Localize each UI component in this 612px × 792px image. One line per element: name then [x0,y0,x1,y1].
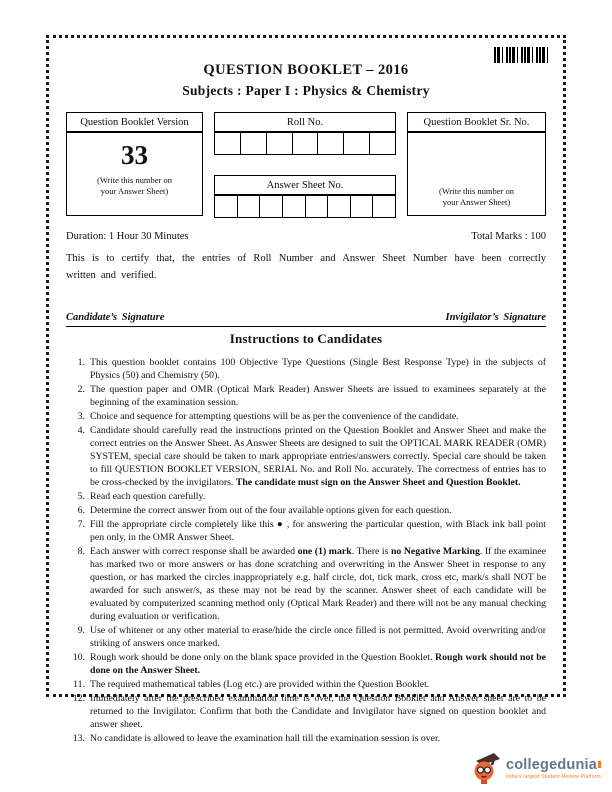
instruction-text: Fill the appropriate circle completely l… [90,518,546,544]
question-booklet-sr-no-box: Question Booklet Sr. No. (Write this num… [407,112,546,216]
entry-cell [293,133,319,154]
instruction-number: 7. [66,518,85,544]
duration-text: Duration: 1 Hour 30 Minutes [66,231,189,242]
entry-cell [318,133,344,154]
entry-cell [267,133,293,154]
spacer [214,155,396,175]
instruction-number: 10. [66,651,85,677]
instruction-number: 1. [66,356,85,382]
answer-sheet-no-label: Answer Sheet No. [215,176,395,196]
instruction-text: Read each question carefully. [90,490,546,503]
instruction-item: 4.Candidate should carefully read the in… [66,424,546,489]
sr-no-box-note: (Write this number on your Answer Sheet) [408,186,545,208]
instructions-title: Instructions to Candidates [66,331,546,347]
entry-cell [351,196,374,217]
logo-text-block: collegedunia India's largest Student Rev… [506,757,601,780]
instruction-text: This question booklet contains 100 Objec… [90,356,546,382]
instruction-item: 3.Choice and sequence for attempting que… [66,410,546,423]
instruction-number: 13. [66,732,85,745]
version-number: 33 [67,142,202,169]
answer-sheet-no-cells [215,196,395,217]
instruction-text: Candidate should carefully read the inst… [90,424,546,489]
logo-name-text: collegedunia [506,757,597,773]
entry-cell [373,196,395,217]
entry-cell [238,196,261,217]
version-box-note: (Write this number on your Answer Sheet) [67,175,202,197]
number-grids-column: Roll No. Answer Sheet No. [214,112,396,218]
collegedunia-logo: collegedunia India's largest Student Rev… [472,751,601,785]
instruction-item: 5.Read each question carefully. [66,490,546,503]
instruction-item: 8.Each answer with correct response shal… [66,545,546,623]
instruction-text: Use of whitener or any other material to… [90,624,546,650]
roll-no-cells [215,133,395,154]
entry-cell [260,196,283,217]
note-line-1: (Write this number on [408,186,545,197]
instruction-item: 7.Fill the appropriate circle completely… [66,518,546,544]
instruction-number: 12. [66,692,85,731]
instruction-number: 9. [66,624,85,650]
candidate-signature-label: Candidate’s Signature [66,312,164,323]
dotted-border-frame: QUESTION BOOKLET – 2016 Subjects : Paper… [46,35,566,697]
instruction-item: 2.The question paper and OMR (Optical Ma… [66,383,546,409]
instruction-number: 8. [66,545,85,623]
mascot-icon [472,751,502,785]
instructions-list: 1.This question booklet contains 100 Obj… [66,356,546,745]
instruction-text: Rough work should be done only on the bl… [90,651,546,677]
instruction-text: Each answer with correct response shall … [90,545,546,623]
instruction-item: 11.The required mathematical tables (Log… [66,678,546,691]
note-line-1: (Write this number on [67,175,202,186]
entry-cell [328,196,351,217]
roll-no-table: Roll No. [214,112,396,155]
page-subtitle: Subjects : Paper I : Physics & Chemistry [66,83,546,99]
header-boxes-row: Question Booklet Version 33 (Write this … [66,112,546,218]
total-marks-text: Total Marks : 100 [471,231,546,242]
sr-no-box-body: (Write this number on your Answer Sheet) [408,133,545,215]
instruction-item: 12.Immediately after the prescribed exam… [66,692,546,731]
instruction-number: 4. [66,424,85,489]
certify-statement: This is to certify that, the entries of … [66,250,546,285]
instruction-text: Choice and sequence for attempting quest… [90,410,546,423]
entry-cell [283,196,306,217]
logo-tagline: India's largest Student Review Platform [506,774,601,780]
instruction-item: 13.No candidate is allowed to leave the … [66,732,546,745]
instruction-text: The required mathematical tables (Log et… [90,678,546,691]
roll-no-label: Roll No. [215,113,395,133]
instruction-number: 3. [66,410,85,423]
instruction-text: Immediately after the prescribed examina… [90,692,546,731]
horizontal-rule [66,326,546,327]
duration-row: Duration: 1 Hour 30 Minutes Total Marks … [66,231,546,242]
instruction-item: 1.This question booklet contains 100 Obj… [66,356,546,382]
answer-sheet-no-table: Answer Sheet No. [214,175,396,218]
instruction-text: No candidate is allowed to leave the exa… [90,732,546,745]
entry-cell [241,133,267,154]
note-line-2: your Answer Sheet) [408,197,545,208]
instruction-number: 6. [66,504,85,517]
barcode [494,47,550,63]
instruction-item: 10.Rough work should be done only on the… [66,651,546,677]
question-booklet-page: QUESTION BOOKLET – 2016 Subjects : Paper… [0,0,612,792]
note-line-2: your Answer Sheet) [67,186,202,197]
instruction-item: 9.Use of whitener or any other material … [66,624,546,650]
version-box-header: Question Booklet Version [67,113,202,133]
instruction-number: 11. [66,678,85,691]
entry-cell [215,133,241,154]
logo-accent-mark-icon [598,761,601,768]
logo-wordmark: collegedunia [506,757,601,773]
instruction-number: 5. [66,490,85,503]
instruction-item: 6.Determine the correct answer from out … [66,504,546,517]
instruction-text: The question paper and OMR (Optical Mark… [90,383,546,409]
invigilator-signature-label: Invigilator’s Signature [445,312,546,323]
instruction-text: Determine the correct answer from out of… [90,504,546,517]
entry-cell [306,196,329,217]
question-booklet-version-box: Question Booklet Version 33 (Write this … [66,112,203,216]
instruction-number: 2. [66,383,85,409]
entry-cell [344,133,370,154]
entry-cell [370,133,395,154]
entry-cell [215,196,238,217]
version-box-body: 33 (Write this number on your Answer She… [67,133,202,197]
signature-row: Candidate’s Signature Invigilator’s Sign… [66,312,546,323]
sr-no-box-header: Question Booklet Sr. No. [408,113,545,133]
page-title: QUESTION BOOKLET – 2016 [66,62,546,79]
